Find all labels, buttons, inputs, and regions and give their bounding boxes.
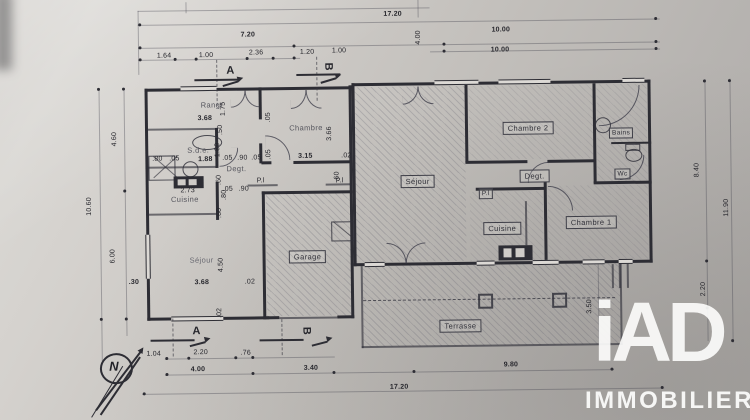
dim-seg-100a: 1.00 xyxy=(199,52,214,60)
section-letter-a-bottom: A xyxy=(192,325,200,337)
room-label-degt: Degt. xyxy=(226,164,246,173)
section-line-b-bottom xyxy=(281,319,282,355)
floor-plan-photo: Séjour Chambre 2 Bains Wc Degt. P.l Cuis… xyxy=(0,0,750,420)
room-label-cuisine: Cuisine xyxy=(171,195,199,204)
dim-degt-b: .90 xyxy=(237,155,247,163)
door-arc xyxy=(245,90,260,107)
dim-rangt-h: 1.75 xyxy=(220,102,228,117)
dim-tick xyxy=(272,57,275,60)
sheet-border xyxy=(138,11,140,75)
dim-top-left: 7.20 xyxy=(241,31,256,39)
dim-degt-c: .05 xyxy=(251,154,261,162)
dim-sde-b: .05 xyxy=(169,155,179,163)
north-compass: N xyxy=(87,339,150,414)
room-label-chambre1: Chambre 1 xyxy=(566,216,617,230)
dim-line xyxy=(165,369,614,375)
dim-seg-164: 1.64 xyxy=(157,52,172,60)
section-cross-a xyxy=(194,79,238,82)
dim-top-right-b: 10.00 xyxy=(491,46,510,54)
dim-sejour-h: 4.50 xyxy=(218,258,226,273)
dim-top-gap: 4.00 xyxy=(415,30,423,45)
room-label-wc: Wc xyxy=(614,168,630,179)
section-line-b xyxy=(316,57,318,101)
dim-v050: .50 xyxy=(217,125,225,135)
sde-washbasin xyxy=(182,161,198,177)
dim-sejour-w: 3.68 xyxy=(195,279,210,287)
dim-tick xyxy=(251,356,254,359)
section-arrow-head xyxy=(237,75,244,82)
dim-tick xyxy=(165,373,168,376)
dim-tick xyxy=(703,79,706,82)
wall xyxy=(263,316,279,319)
dim-tick xyxy=(125,318,128,321)
kitchen-hob xyxy=(189,179,197,185)
dim-tick xyxy=(655,47,658,50)
terrasse-post xyxy=(552,293,567,308)
section-letter-b-top: B xyxy=(322,63,334,71)
dim-tick xyxy=(195,58,198,61)
dim-tick xyxy=(138,23,141,26)
wall xyxy=(145,89,151,321)
section-arrow xyxy=(312,341,328,347)
dim-chambre-eps: .02 xyxy=(341,152,351,160)
dim-tick xyxy=(443,50,446,53)
room-label-sejour: Séjour xyxy=(401,175,435,188)
dim-tick xyxy=(234,356,237,359)
dim-tick xyxy=(412,370,415,373)
room-label-sde: S.d.e. xyxy=(187,146,209,155)
dim-tick xyxy=(654,17,657,20)
kitchen-hob xyxy=(515,248,524,257)
room-label-garage: Garage xyxy=(289,250,327,263)
room-label-terrasse: Terrasse xyxy=(439,319,481,333)
room-label-cuisine: Cuisine xyxy=(483,222,521,235)
section-arrow-head xyxy=(204,335,211,342)
dim-tick xyxy=(122,88,125,91)
section-arrow xyxy=(320,77,336,84)
dim-v005a: .05 xyxy=(265,112,273,122)
agency-logo: iAD xyxy=(593,290,723,374)
wall xyxy=(465,160,527,164)
dim-v002: .02 xyxy=(216,308,224,318)
dim-left-offset: .30 xyxy=(129,279,139,287)
wall xyxy=(146,213,218,216)
room-label-chambre: Chambre xyxy=(289,123,323,132)
dim-v060a: .60 xyxy=(216,175,224,185)
wall xyxy=(337,315,354,318)
dim-tick xyxy=(251,372,254,375)
dim-tick xyxy=(174,58,177,61)
dim-tick xyxy=(731,339,734,342)
dim-rangt-w: 3.68 xyxy=(198,115,213,123)
dim-chambre-h: 3.66 xyxy=(326,126,334,141)
dim-right-upper: 8.40 xyxy=(693,163,701,178)
sheet-border xyxy=(185,2,186,13)
dim-tick xyxy=(100,318,103,321)
dim-v060b: .60 xyxy=(216,208,224,218)
wall xyxy=(261,161,271,164)
section-line-a xyxy=(216,60,218,106)
dim-bot-220: 2.20 xyxy=(193,349,208,357)
section-line-a-bottom xyxy=(172,318,173,356)
dim-tick xyxy=(293,56,296,59)
wall xyxy=(145,128,217,131)
room-label-sejour: Séjour xyxy=(189,255,213,264)
room-label-bains: Bains xyxy=(609,127,633,138)
section-cross-b-bottom xyxy=(260,339,304,342)
dim-sejour-eps: .02 xyxy=(245,278,255,286)
dim-tick xyxy=(187,357,190,360)
dim-tick xyxy=(442,43,445,46)
kitchen-sink xyxy=(503,248,511,257)
dim-top-right-a: 10.00 xyxy=(492,26,511,34)
compass-north-label: N xyxy=(109,359,119,374)
room-label-placard: P.l xyxy=(479,188,493,199)
terrasse-post xyxy=(478,294,493,309)
dim-v180: 1.80 xyxy=(214,143,222,158)
section-letter-b-bottom: B xyxy=(300,327,312,335)
room-label-chambre2: Chambre 2 xyxy=(503,121,554,135)
section-arrow-head xyxy=(326,335,333,342)
door-arc xyxy=(306,90,322,109)
dim-line xyxy=(430,49,660,53)
garage-door xyxy=(279,316,337,319)
dim-left-upper: 4.60 xyxy=(111,132,119,147)
dim-v005b: .05 xyxy=(265,149,273,159)
dim-bot-340: 3.40 xyxy=(304,365,319,373)
section-cross-a-bottom xyxy=(151,339,195,342)
dim-tick xyxy=(654,40,657,43)
dim-tick xyxy=(165,357,168,360)
section-arrow-head xyxy=(335,72,342,79)
dim-seg-100b: 1.00 xyxy=(332,47,347,55)
dim-v080: .80 xyxy=(221,190,229,200)
window xyxy=(434,80,478,86)
dim-chambre-w: 3.15 xyxy=(298,153,313,161)
dim-v060c: .60 xyxy=(334,171,342,181)
dim-tick xyxy=(292,44,295,47)
agency-logo-subtitle: IMMOBILIER xyxy=(585,388,750,414)
door-arc xyxy=(291,90,307,109)
window xyxy=(145,235,151,279)
dim-line xyxy=(138,42,660,49)
room-label-degt: Degt. xyxy=(520,169,550,182)
dim-line xyxy=(138,19,660,26)
dim-degt-e: .90 xyxy=(239,186,249,194)
sheet-border xyxy=(417,0,418,17)
dim-right-total: 11.90 xyxy=(723,199,731,217)
section-arrow xyxy=(222,80,238,87)
dim-bot-terrace: 9.80 xyxy=(504,361,519,369)
dim-top-total: 17.20 xyxy=(383,11,402,19)
dim-sde-w: 1.88 xyxy=(198,156,213,164)
dim-line xyxy=(123,88,127,336)
window xyxy=(180,86,216,91)
door-arc xyxy=(231,91,246,108)
placard-label: P.l xyxy=(257,177,265,185)
window xyxy=(622,78,644,83)
garage-side-door xyxy=(331,221,354,241)
dim-seg-236: 2.36 xyxy=(249,49,264,57)
kitchen-sink xyxy=(178,179,186,185)
dim-tick xyxy=(332,371,335,374)
dim-left-total: 10.60 xyxy=(86,197,94,216)
dim-tick xyxy=(97,88,100,91)
dim-bot-total: 17.20 xyxy=(390,384,409,392)
section-letter-a-top: A xyxy=(226,65,234,77)
dim-tick xyxy=(139,58,142,61)
dim-degt-a: .05 xyxy=(222,155,232,163)
dim-tick xyxy=(138,46,141,49)
dim-bot-76: .76 xyxy=(241,350,251,358)
wall xyxy=(547,159,595,163)
window xyxy=(498,79,550,85)
dim-bot-400: 4.00 xyxy=(191,366,206,374)
section-arrow xyxy=(190,341,206,347)
dim-left-lower: 6.00 xyxy=(109,249,117,264)
dim-tick xyxy=(728,79,731,82)
dim-tick xyxy=(705,259,708,262)
dim-seg-120: 1.20 xyxy=(300,49,315,57)
dim-tick xyxy=(123,190,126,193)
dim-sde-a: .80 xyxy=(152,156,162,164)
